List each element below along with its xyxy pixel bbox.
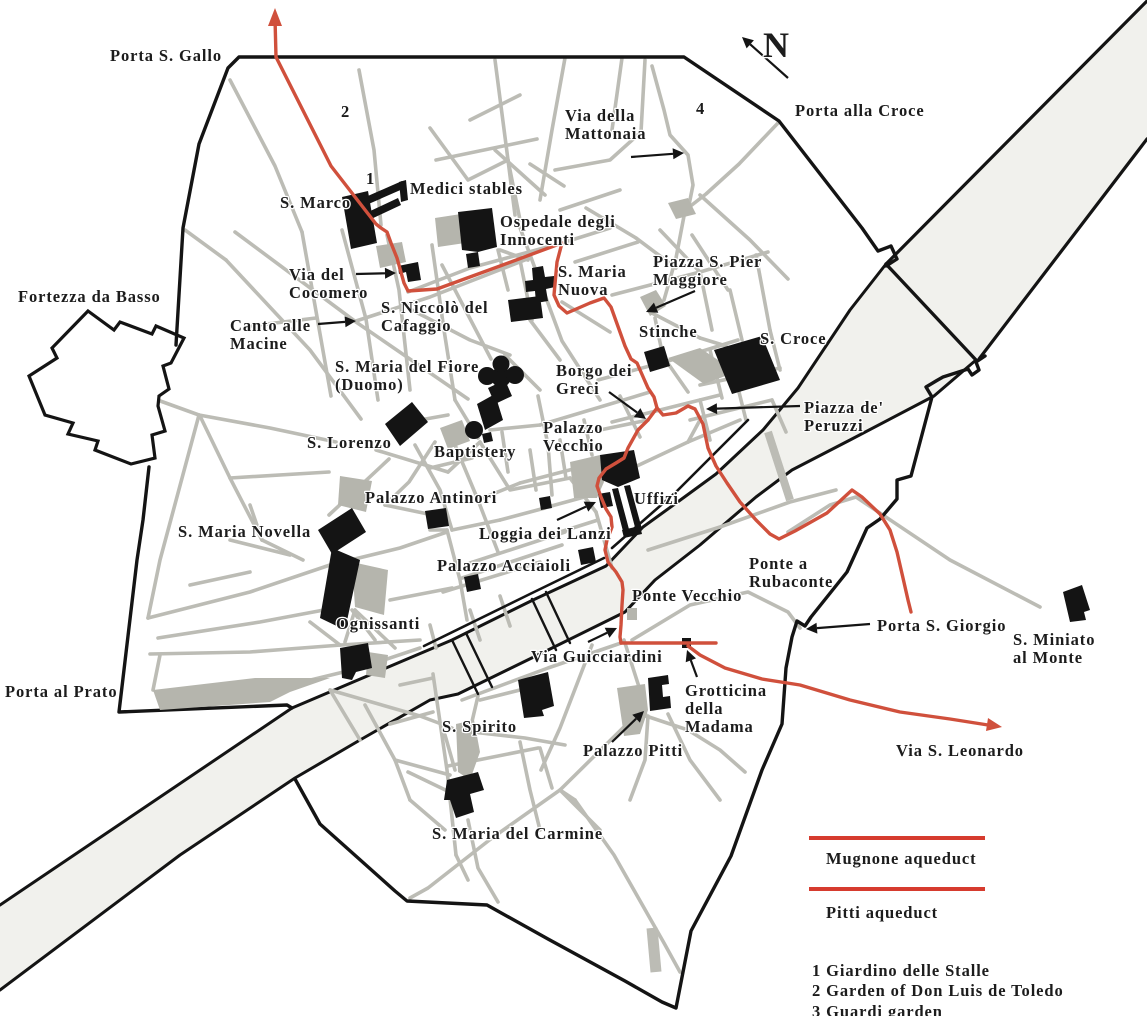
svg-text:Piazza S. Pier: Piazza S. Pier bbox=[653, 252, 762, 271]
svg-text:Fortezza da Basso: Fortezza da Basso bbox=[18, 287, 161, 306]
svg-text:Grotticina: Grotticina bbox=[685, 681, 767, 700]
svg-text:Via Guicciardini: Via Guicciardini bbox=[531, 647, 663, 666]
svg-text:Borgo dei: Borgo dei bbox=[556, 361, 632, 380]
svg-text:Pitti aqueduct: Pitti aqueduct bbox=[826, 903, 938, 922]
svg-text:Mattonaia: Mattonaia bbox=[565, 124, 646, 143]
svg-text:S. Niccolò del: S. Niccolò del bbox=[381, 298, 488, 317]
svg-text:Cafaggio: Cafaggio bbox=[381, 316, 451, 335]
svg-text:4: 4 bbox=[696, 99, 705, 118]
svg-text:S. Maria: S. Maria bbox=[558, 262, 627, 281]
svg-text:S. Maria Novella: S. Maria Novella bbox=[178, 522, 311, 541]
svg-text:Via del: Via del bbox=[289, 265, 345, 284]
svg-text:Innocenti: Innocenti bbox=[500, 230, 575, 249]
svg-text:S. Maria del Carmine: S. Maria del Carmine bbox=[432, 824, 603, 843]
svg-text:Porta S. Giorgio: Porta S. Giorgio bbox=[877, 616, 1006, 635]
svg-text:Palazzo: Palazzo bbox=[543, 418, 603, 437]
svg-text:Porta alla Croce: Porta alla Croce bbox=[795, 101, 925, 120]
svg-text:Porta al Prato: Porta al Prato bbox=[5, 682, 117, 701]
svg-text:Vecchio: Vecchio bbox=[543, 436, 604, 455]
svg-text:Ponte Vecchio: Ponte Vecchio bbox=[632, 586, 742, 605]
svg-text:S. Maria del Fiore: S. Maria del Fiore bbox=[335, 357, 479, 376]
svg-text:S. Miniato: S. Miniato bbox=[1013, 630, 1095, 649]
svg-text:Ognissanti: Ognissanti bbox=[336, 614, 420, 633]
svg-text:Uffizi: Uffizi bbox=[634, 489, 679, 508]
svg-text:2 Garden of Don Luis de Toledo: 2 Garden of Don Luis de Toledo bbox=[812, 981, 1064, 1000]
svg-text:Ospedale degli: Ospedale degli bbox=[500, 212, 616, 231]
svg-text:Palazzo Pitti: Palazzo Pitti bbox=[583, 741, 683, 760]
svg-text:Loggia dei Lanzi: Loggia dei Lanzi bbox=[479, 524, 612, 543]
svg-text:Canto alle: Canto alle bbox=[230, 316, 311, 335]
svg-text:Macine: Macine bbox=[230, 334, 288, 353]
svg-text:Peruzzi: Peruzzi bbox=[804, 416, 863, 435]
svg-text:3 Guardi garden: 3 Guardi garden bbox=[812, 1002, 943, 1016]
svg-text:S. Spirito: S. Spirito bbox=[442, 717, 517, 736]
svg-text:Via S. Leonardo: Via S. Leonardo bbox=[896, 741, 1024, 760]
svg-text:Ponte a: Ponte a bbox=[749, 554, 808, 573]
svg-text:2: 2 bbox=[341, 102, 350, 121]
svg-text:1: 1 bbox=[366, 169, 375, 188]
svg-text:S. Marco: S. Marco bbox=[280, 193, 351, 212]
svg-text:Nuova: Nuova bbox=[558, 280, 608, 299]
svg-text:Cocomero: Cocomero bbox=[289, 283, 368, 302]
svg-text:Greci: Greci bbox=[556, 379, 600, 398]
svg-text:(Duomo): (Duomo) bbox=[335, 375, 404, 394]
svg-text:della: della bbox=[685, 699, 723, 718]
svg-text:Piazza de': Piazza de' bbox=[804, 398, 884, 417]
svg-text:S. Lorenzo: S. Lorenzo bbox=[307, 433, 392, 452]
svg-text:Porta S. Gallo: Porta S. Gallo bbox=[110, 46, 222, 65]
svg-text:S. Croce: S. Croce bbox=[760, 329, 826, 348]
svg-text:Rubaconte: Rubaconte bbox=[749, 572, 833, 591]
svg-text:Stinche: Stinche bbox=[639, 322, 698, 341]
svg-text:Palazzo Acciaioli: Palazzo Acciaioli bbox=[437, 556, 571, 575]
svg-text:Maggiore: Maggiore bbox=[653, 270, 728, 289]
svg-text:Baptistery: Baptistery bbox=[434, 442, 516, 461]
svg-text:1 Giardino delle Stalle: 1 Giardino delle Stalle bbox=[812, 961, 990, 980]
svg-text:Medici stables: Medici stables bbox=[410, 179, 523, 198]
svg-text:N: N bbox=[763, 25, 790, 65]
svg-text:Madama: Madama bbox=[685, 717, 754, 736]
svg-text:Palazzo Antinori: Palazzo Antinori bbox=[365, 488, 497, 507]
svg-text:Via della: Via della bbox=[565, 106, 635, 125]
svg-text:al Monte: al Monte bbox=[1013, 648, 1083, 667]
svg-text:Mugnone aqueduct: Mugnone aqueduct bbox=[826, 849, 977, 868]
